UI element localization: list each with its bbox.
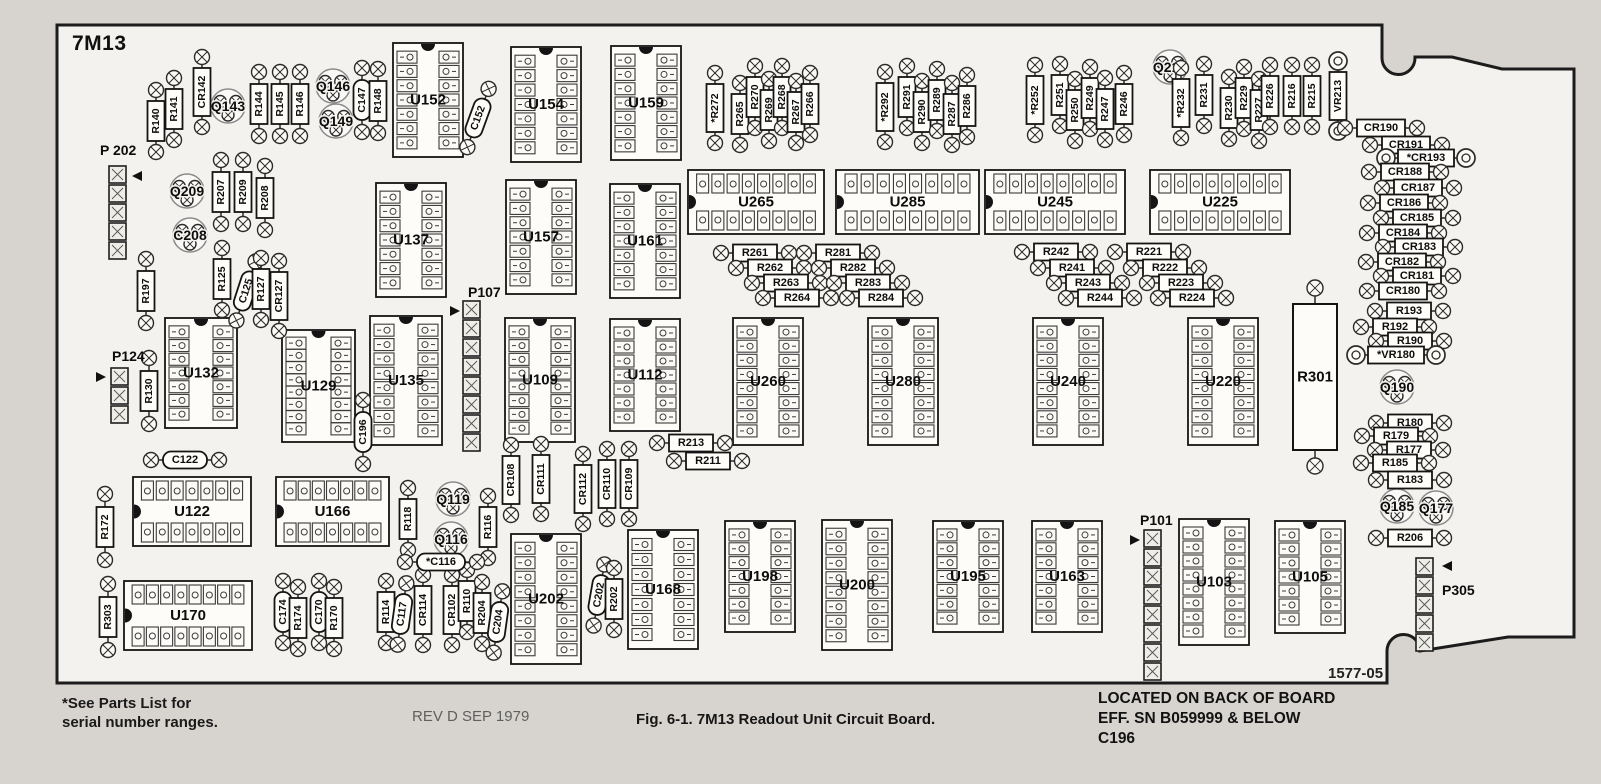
svg-text:R192: R192 bbox=[1382, 321, 1408, 333]
svg-text:U220: U220 bbox=[1205, 373, 1241, 390]
svg-text:U170: U170 bbox=[170, 607, 206, 624]
svg-text:R144: R144 bbox=[253, 91, 265, 116]
svg-text:R170: R170 bbox=[328, 605, 340, 630]
svg-text:R270: R270 bbox=[749, 84, 761, 109]
svg-text:U135: U135 bbox=[388, 372, 424, 389]
svg-text:R110: R110 bbox=[461, 589, 473, 614]
svg-text:R172: R172 bbox=[99, 514, 111, 539]
svg-text:R251: R251 bbox=[1054, 82, 1066, 107]
svg-text:R213: R213 bbox=[678, 437, 704, 449]
svg-text:R209: R209 bbox=[237, 179, 249, 204]
axial-R213: R213 bbox=[650, 435, 733, 452]
svg-text:R116: R116 bbox=[482, 515, 494, 540]
ic-U112: U112 bbox=[610, 319, 680, 431]
svg-text:P124: P124 bbox=[112, 348, 145, 364]
svg-text:R221: R221 bbox=[1136, 246, 1162, 258]
svg-text:R146: R146 bbox=[294, 91, 306, 116]
axial-R266: R266 bbox=[802, 66, 819, 143]
svg-text:R241: R241 bbox=[1059, 262, 1085, 274]
svg-text:R222: R222 bbox=[1152, 262, 1178, 274]
svg-text:C196: C196 bbox=[357, 419, 369, 444]
axial-VR180: *VR180 bbox=[1347, 346, 1445, 364]
svg-text:U166: U166 bbox=[315, 503, 351, 520]
svg-text:CR142: CR142 bbox=[196, 75, 208, 108]
svg-text:U163: U163 bbox=[1049, 568, 1085, 585]
axial-R206: R206 bbox=[1369, 530, 1452, 547]
svg-text:P101: P101 bbox=[1140, 512, 1173, 528]
axial-C122: C122 bbox=[144, 452, 227, 469]
axial-R183: R183 bbox=[1369, 472, 1452, 489]
svg-text:U202: U202 bbox=[528, 591, 564, 608]
svg-text:R140: R140 bbox=[150, 108, 162, 133]
ic-U245: U245 bbox=[985, 170, 1125, 234]
svg-text:*CR193: *CR193 bbox=[1407, 152, 1446, 164]
axial-C196: C196 bbox=[355, 393, 372, 472]
svg-text:Q116: Q116 bbox=[434, 531, 468, 547]
axial-CR127: CR127 bbox=[271, 254, 288, 339]
ic-U202: U202 bbox=[511, 534, 581, 664]
svg-text:CR185: CR185 bbox=[1400, 212, 1434, 224]
svg-text:U265: U265 bbox=[738, 194, 774, 211]
svg-text:U198: U198 bbox=[742, 568, 778, 585]
transistor-Q146: Q146 bbox=[316, 69, 350, 103]
svg-text:CR109: CR109 bbox=[623, 467, 635, 500]
svg-text:CR108: CR108 bbox=[505, 463, 517, 496]
svg-text:U154: U154 bbox=[528, 96, 565, 113]
svg-text:R185: R185 bbox=[1382, 457, 1408, 469]
svg-text:R224: R224 bbox=[1179, 292, 1206, 304]
svg-text:R284: R284 bbox=[868, 292, 895, 304]
axial-R125: R125 bbox=[214, 241, 231, 318]
footnote-line1: *See Parts List for bbox=[62, 695, 191, 712]
axial-R221: R221 bbox=[1108, 244, 1191, 261]
axial-R207: R207 bbox=[213, 153, 230, 232]
svg-text:U157: U157 bbox=[523, 229, 559, 246]
svg-text:R247: R247 bbox=[1099, 96, 1111, 121]
svg-text:R130: R130 bbox=[143, 378, 155, 403]
axial-R193: R193 bbox=[1368, 303, 1451, 320]
axial-R264: R264 bbox=[756, 290, 839, 307]
ic-U285: U285 bbox=[836, 170, 979, 234]
axial-C147: C147 bbox=[354, 61, 371, 140]
svg-text:R206: R206 bbox=[1397, 532, 1423, 544]
svg-text:R226: R226 bbox=[1264, 83, 1276, 108]
ic-U154: U154 bbox=[511, 47, 581, 162]
svg-text:CR110: CR110 bbox=[601, 468, 613, 500]
svg-text:R179: R179 bbox=[1383, 430, 1409, 442]
svg-text:R229: R229 bbox=[1238, 85, 1250, 110]
svg-text:R148: R148 bbox=[372, 88, 384, 113]
svg-text:U122: U122 bbox=[174, 503, 210, 520]
svg-text:R207: R207 bbox=[215, 179, 227, 204]
board-part-number: 1577-05 bbox=[1328, 665, 1383, 682]
svg-text:C147: C147 bbox=[356, 87, 368, 112]
svg-text:R230: R230 bbox=[1223, 95, 1235, 120]
svg-text:*R292: *R292 bbox=[879, 92, 891, 121]
svg-text:CR182: CR182 bbox=[1385, 256, 1419, 268]
svg-text:CR127: CR127 bbox=[273, 279, 285, 312]
svg-text:R265: R265 bbox=[734, 101, 746, 126]
svg-text:Q185: Q185 bbox=[1380, 498, 1414, 514]
svg-text:U200: U200 bbox=[839, 577, 875, 594]
svg-text:CR111: CR111 bbox=[535, 463, 547, 495]
ic-U166: U166 bbox=[276, 477, 389, 546]
axial-CR112: CR112 bbox=[575, 447, 592, 532]
svg-text:*VR180: *VR180 bbox=[1377, 349, 1415, 361]
svg-text:R249: R249 bbox=[1084, 85, 1096, 110]
svg-text:R290: R290 bbox=[916, 99, 928, 124]
svg-text:R250: R250 bbox=[1069, 97, 1081, 122]
svg-text:CR112: CR112 bbox=[577, 473, 589, 505]
svg-text:*C116: *C116 bbox=[426, 556, 456, 568]
ic-U260: U260 bbox=[733, 318, 803, 445]
svg-text:R127: R127 bbox=[255, 276, 267, 301]
footnote-line2: serial number ranges. bbox=[62, 714, 218, 731]
axial-CR114: CR114 bbox=[415, 568, 432, 653]
ic-U168: U168 bbox=[628, 530, 698, 649]
svg-text:CR181: CR181 bbox=[1400, 270, 1434, 282]
svg-text:U240: U240 bbox=[1050, 373, 1086, 390]
transistor-Q149: Q149 bbox=[319, 104, 353, 138]
svg-text:R211: R211 bbox=[695, 455, 721, 467]
axial-R272: *R272 bbox=[707, 66, 724, 151]
axial-R127: R127 bbox=[253, 251, 270, 328]
svg-text:R266: R266 bbox=[804, 91, 816, 116]
svg-text:Q209: Q209 bbox=[170, 183, 204, 199]
axial-R242: R242 bbox=[1015, 244, 1098, 261]
ic-U200: U200 bbox=[822, 520, 892, 650]
svg-text:U285: U285 bbox=[890, 194, 926, 211]
svg-text:R289: R289 bbox=[931, 87, 943, 112]
svg-text:R262: R262 bbox=[757, 262, 783, 274]
svg-text:U129: U129 bbox=[301, 378, 337, 395]
svg-text:U260: U260 bbox=[750, 373, 786, 390]
ic-U225: U225 bbox=[1150, 170, 1290, 234]
svg-text:R114: R114 bbox=[380, 600, 392, 625]
svg-text:R243: R243 bbox=[1075, 277, 1101, 289]
svg-text:C122: C122 bbox=[172, 454, 198, 466]
revision-text: REV D SEP 1979 bbox=[412, 708, 529, 725]
transistor-Q116: Q116 bbox=[434, 522, 468, 556]
ic-U103: U103 bbox=[1179, 519, 1249, 645]
svg-text:U132: U132 bbox=[183, 365, 219, 382]
svg-text:P305: P305 bbox=[1442, 582, 1475, 598]
axial-R118: R118 bbox=[400, 481, 417, 558]
transistor-C208: C208 bbox=[173, 218, 207, 252]
ic-U161: U161 bbox=[610, 184, 680, 298]
svg-text:U109: U109 bbox=[522, 372, 558, 389]
svg-text:R215: R215 bbox=[1306, 83, 1318, 108]
svg-text:CR184: CR184 bbox=[1386, 227, 1421, 239]
svg-text:R244: R244 bbox=[1087, 292, 1114, 304]
svg-text:R263: R263 bbox=[773, 277, 799, 289]
axial-R141: R141 bbox=[166, 71, 183, 148]
transistor-Q209: Q209 bbox=[170, 174, 204, 208]
svg-text:C174: C174 bbox=[277, 599, 289, 624]
svg-text:R190: R190 bbox=[1397, 335, 1423, 347]
svg-text:R223: R223 bbox=[1168, 277, 1194, 289]
ic-U163: U163 bbox=[1032, 521, 1102, 632]
axial-R216: R216 bbox=[1284, 58, 1301, 135]
axial-CR109: CR109 bbox=[621, 442, 638, 527]
axial-R292: *R292 bbox=[877, 65, 894, 150]
transistor-Q177: Q177 bbox=[1419, 491, 1453, 525]
axial-CR108: CR108 bbox=[503, 438, 520, 523]
svg-text:R282: R282 bbox=[840, 262, 866, 274]
svg-text:R246: R246 bbox=[1118, 91, 1130, 116]
svg-text:Q190: Q190 bbox=[1380, 379, 1414, 395]
axial-CR180: CR180 bbox=[1360, 283, 1447, 300]
ic-U122: U122 bbox=[133, 477, 251, 546]
axial-R231: R231 bbox=[1196, 57, 1213, 134]
svg-text:Q143: Q143 bbox=[211, 98, 245, 114]
svg-text:CR186: CR186 bbox=[1387, 197, 1421, 209]
ic-U198: U198 bbox=[725, 521, 795, 632]
svg-text:U168: U168 bbox=[645, 581, 681, 598]
svg-text:U105: U105 bbox=[1292, 569, 1328, 586]
svg-text:R281: R281 bbox=[825, 247, 851, 259]
svg-text:R231: R231 bbox=[1198, 82, 1210, 107]
svg-text:R268: R268 bbox=[776, 84, 788, 109]
transistor-Q190: Q190 bbox=[1380, 370, 1414, 404]
svg-text:R202: R202 bbox=[608, 586, 620, 611]
ic-U280: U280 bbox=[868, 318, 938, 445]
svg-text:R216: R216 bbox=[1286, 83, 1298, 108]
svg-text:U195: U195 bbox=[950, 568, 986, 585]
svg-text:CR187: CR187 bbox=[1401, 182, 1435, 194]
axial-C116: *C116 bbox=[398, 554, 485, 571]
axial-R170: R170 bbox=[326, 580, 343, 657]
axial-R174: R174 bbox=[290, 580, 307, 657]
transistor-Q143: Q143 bbox=[211, 89, 245, 123]
svg-text:C170: C170 bbox=[313, 599, 325, 624]
svg-text:*R252: *R252 bbox=[1029, 85, 1041, 114]
svg-text:CR188: CR188 bbox=[1388, 166, 1422, 178]
svg-text:R174: R174 bbox=[292, 605, 304, 630]
axial-CR142: CR142 bbox=[194, 50, 211, 135]
axial-CR111: CR111 bbox=[533, 437, 550, 522]
svg-text:R204: R204 bbox=[476, 600, 488, 625]
axial-R197: R197 bbox=[138, 252, 155, 331]
axial-R172: R172 bbox=[97, 487, 114, 568]
svg-text:U280: U280 bbox=[885, 373, 921, 390]
ic-U129: U129 bbox=[282, 330, 355, 442]
svg-text:R145: R145 bbox=[274, 91, 286, 116]
axial-R208: R208 bbox=[257, 159, 274, 238]
svg-text:R291: R291 bbox=[901, 84, 913, 109]
axial-CR110: CR110 bbox=[599, 442, 616, 527]
axial-R146: R146 bbox=[292, 65, 309, 144]
ic-U105: U105 bbox=[1275, 521, 1345, 633]
axial-R215: R215 bbox=[1304, 58, 1321, 135]
svg-text:Q119: Q119 bbox=[436, 491, 470, 507]
svg-text:R283: R283 bbox=[855, 277, 881, 289]
ic-U152: U152 bbox=[393, 43, 463, 157]
svg-text:*R272: *R272 bbox=[709, 93, 721, 122]
svg-text:C208: C208 bbox=[173, 227, 207, 243]
svg-text:CR190: CR190 bbox=[1364, 122, 1398, 134]
ic-U170: U170 bbox=[124, 581, 252, 650]
svg-text:R286: R286 bbox=[961, 93, 973, 118]
svg-text:CR183: CR183 bbox=[1402, 241, 1436, 253]
svg-text:Q149: Q149 bbox=[319, 113, 353, 129]
ic-U135: U135 bbox=[370, 316, 442, 445]
axial-R286: R286 bbox=[959, 68, 976, 145]
svg-text:R197: R197 bbox=[140, 278, 152, 303]
parts-list-footnote: *See Parts List for serial number ranges… bbox=[62, 695, 218, 733]
transistor-Q185: Q185 bbox=[1380, 489, 1414, 523]
svg-text:U159: U159 bbox=[628, 95, 664, 112]
svg-text:*R232: *R232 bbox=[1175, 88, 1187, 117]
back-of-board-note: LOCATED ON BACK OF BOARD EFF. SN B059999… bbox=[1098, 689, 1335, 749]
svg-text:U112: U112 bbox=[627, 367, 662, 384]
svg-text:R118: R118 bbox=[402, 507, 414, 532]
axial-R140: R140 bbox=[148, 83, 165, 160]
axial-CR188: CR188 bbox=[1362, 164, 1449, 181]
svg-text:R183: R183 bbox=[1397, 474, 1423, 486]
ic-U132: U132 bbox=[165, 318, 237, 428]
svg-text:P 202: P 202 bbox=[100, 142, 137, 158]
board-title: 7M13 bbox=[72, 32, 127, 56]
axial-R232: *R232 bbox=[1173, 61, 1190, 146]
axial-R252: *R252 bbox=[1027, 58, 1044, 143]
svg-text:R242: R242 bbox=[1043, 246, 1069, 258]
svg-text:R267: R267 bbox=[790, 99, 802, 124]
svg-text:CR114: CR114 bbox=[417, 594, 429, 626]
ic-U240: U240 bbox=[1033, 318, 1103, 445]
svg-text:R287: R287 bbox=[946, 101, 958, 126]
svg-text:U245: U245 bbox=[1037, 194, 1073, 211]
axial-R224: R224 bbox=[1151, 290, 1234, 307]
back-note-line3: C196 bbox=[1098, 730, 1135, 747]
svg-text:R303: R303 bbox=[102, 604, 114, 629]
power-resistor-R301: R301 bbox=[1293, 280, 1337, 474]
ic-U220: U220 bbox=[1188, 318, 1258, 445]
svg-text:Q146: Q146 bbox=[316, 78, 350, 94]
ic-U195: U195 bbox=[933, 521, 1003, 632]
svg-text:U161: U161 bbox=[627, 233, 663, 250]
axial-R226: R226 bbox=[1262, 58, 1279, 135]
svg-text:R141: R141 bbox=[168, 96, 180, 121]
back-note-line1: LOCATED ON BACK OF BOARD bbox=[1098, 690, 1335, 707]
svg-text:R301: R301 bbox=[1297, 369, 1333, 386]
svg-text:Q177: Q177 bbox=[1419, 500, 1453, 516]
axial-R303: R303 bbox=[100, 577, 117, 658]
axial-R145: R145 bbox=[272, 65, 289, 144]
svg-text:R208: R208 bbox=[259, 185, 271, 210]
axial-R246: R246 bbox=[1116, 66, 1133, 143]
ic-U265: U265 bbox=[688, 170, 824, 234]
axial-R284: R284 bbox=[840, 290, 923, 307]
axial-R244: R244 bbox=[1059, 290, 1142, 307]
svg-text:U225: U225 bbox=[1202, 194, 1238, 211]
svg-text:U137: U137 bbox=[393, 232, 429, 249]
svg-text:VR213: VR213 bbox=[1332, 80, 1344, 112]
ic-U157: U157 bbox=[506, 180, 576, 294]
axial-R144: R144 bbox=[251, 65, 268, 144]
axial-R204: R204 bbox=[474, 575, 491, 652]
svg-text:U103: U103 bbox=[1196, 574, 1232, 591]
ic-U109: U109 bbox=[505, 318, 575, 442]
svg-text:R193: R193 bbox=[1396, 305, 1422, 317]
svg-text:U152: U152 bbox=[410, 92, 446, 109]
axial-CR190: CR190 bbox=[1338, 120, 1425, 137]
figure-caption: Fig. 6-1. 7M13 Readout Unit Circuit Boar… bbox=[636, 711, 935, 728]
back-note-line2: EFF. SN B059999 & BELOW bbox=[1098, 710, 1300, 727]
axial-R247: R247 bbox=[1097, 71, 1114, 148]
ic-U159: U159 bbox=[611, 46, 681, 160]
svg-text:P107: P107 bbox=[468, 284, 501, 300]
axial-R209: R209 bbox=[235, 153, 252, 232]
svg-text:CR102: CR102 bbox=[446, 593, 458, 626]
svg-text:CR180: CR180 bbox=[1386, 285, 1420, 297]
figure-page: Q143Q146Q149Q209C208Q216Q190Q185Q177Q119… bbox=[0, 0, 1601, 784]
axial-R116: R116 bbox=[480, 489, 497, 566]
ic-U137: U137 bbox=[376, 183, 446, 297]
axial-R211: R211 bbox=[667, 453, 750, 470]
transistor-Q119: Q119 bbox=[436, 482, 470, 516]
axial-R148: R148 bbox=[370, 62, 387, 141]
svg-text:R264: R264 bbox=[784, 292, 811, 304]
axial-R185: R185 bbox=[1354, 455, 1437, 472]
axial-R202: R202 bbox=[606, 561, 623, 638]
svg-text:R125: R125 bbox=[216, 266, 228, 291]
svg-text:R261: R261 bbox=[742, 247, 768, 259]
